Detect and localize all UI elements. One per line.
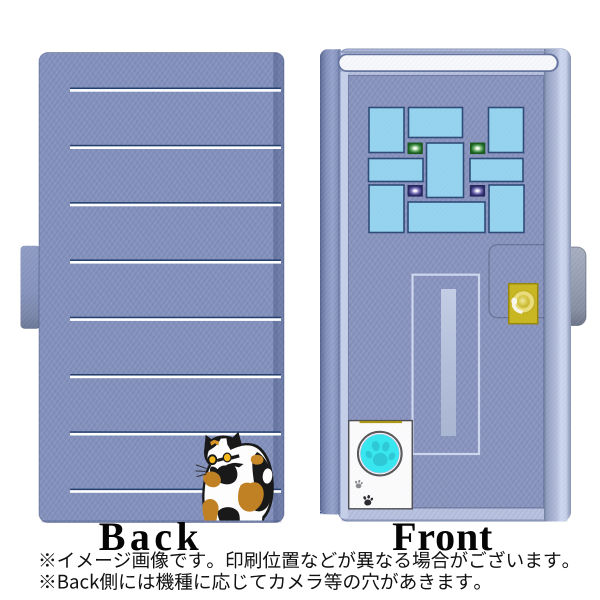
svg-text:Back: Back	[99, 514, 203, 559]
svg-text:Front: Front	[392, 514, 493, 559]
